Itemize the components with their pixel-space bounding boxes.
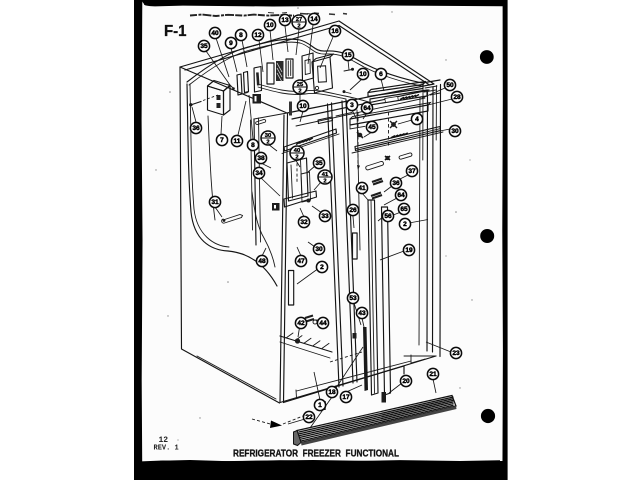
svg-text:14: 14 [310,16,318,23]
svg-text:9: 9 [229,40,233,47]
svg-text:32: 32 [300,219,308,226]
svg-text:38: 38 [257,155,265,162]
svg-text:40: 40 [294,148,300,154]
svg-text:36: 36 [392,180,400,187]
svg-text:41: 41 [358,185,366,192]
svg-text:47: 47 [297,258,305,265]
svg-text:2: 2 [295,155,298,161]
svg-text:50: 50 [446,82,454,89]
svg-text:11: 11 [234,138,241,145]
svg-text:27: 27 [296,17,302,23]
svg-text:2: 2 [403,221,407,228]
svg-text:23: 23 [452,350,460,357]
svg-text:2: 2 [323,179,326,185]
svg-text:2: 2 [266,140,269,146]
svg-text:3: 3 [350,102,354,109]
svg-text:REV. 1: REV. 1 [154,445,179,453]
svg-text:33: 33 [321,213,329,220]
svg-text:64: 64 [363,105,371,112]
svg-text:6: 6 [379,71,383,78]
svg-text:36: 36 [192,125,200,132]
svg-text:65: 65 [400,206,408,213]
svg-text:17: 17 [342,394,350,401]
svg-text:19: 19 [405,247,413,254]
svg-text:34: 34 [255,170,263,177]
svg-text:15: 15 [344,52,352,59]
svg-text:48: 48 [258,258,266,265]
svg-text:7: 7 [220,137,224,144]
svg-text:44: 44 [319,320,327,327]
svg-text:8: 8 [239,32,243,39]
svg-text:43: 43 [358,310,366,317]
svg-text:8: 8 [251,142,255,149]
svg-text:16: 16 [331,28,339,35]
svg-text:10: 10 [299,103,307,110]
svg-text:53: 53 [349,295,357,302]
svg-text:42: 42 [297,320,305,327]
svg-text:2: 2 [298,89,301,95]
svg-text:41: 41 [322,172,329,178]
svg-text:35: 35 [315,160,323,167]
svg-text:10: 10 [266,22,274,29]
svg-text:20: 20 [402,378,410,385]
svg-text:31: 31 [211,199,219,206]
svg-text:12: 12 [254,32,262,39]
svg-text:F-1: F-1 [164,23,187,40]
svg-text:30: 30 [265,133,271,139]
svg-text:30: 30 [315,246,323,253]
svg-text:64: 64 [397,192,405,199]
svg-text:26: 26 [349,207,357,214]
svg-text:13: 13 [281,17,289,24]
svg-text:4: 4 [415,116,419,123]
svg-text:40: 40 [211,30,219,37]
svg-text:30: 30 [451,128,459,135]
svg-text:REFRIGERATOR FREEZER FUNCTIO: REFRIGERATOR FREEZER FUNCTIONAL [233,449,399,460]
svg-text:2: 2 [297,24,300,30]
svg-text:25: 25 [297,82,304,88]
svg-text:56: 56 [384,213,392,220]
svg-text:10: 10 [359,71,367,78]
svg-text:1: 1 [318,402,322,409]
svg-text:21: 21 [429,371,437,378]
svg-text:37: 37 [408,168,416,175]
svg-text:45: 45 [368,124,376,131]
svg-text:28: 28 [453,94,461,101]
svg-text:18: 18 [328,389,336,396]
svg-text:35: 35 [200,43,208,50]
svg-text:22: 22 [305,414,313,421]
svg-text:2: 2 [320,264,324,271]
